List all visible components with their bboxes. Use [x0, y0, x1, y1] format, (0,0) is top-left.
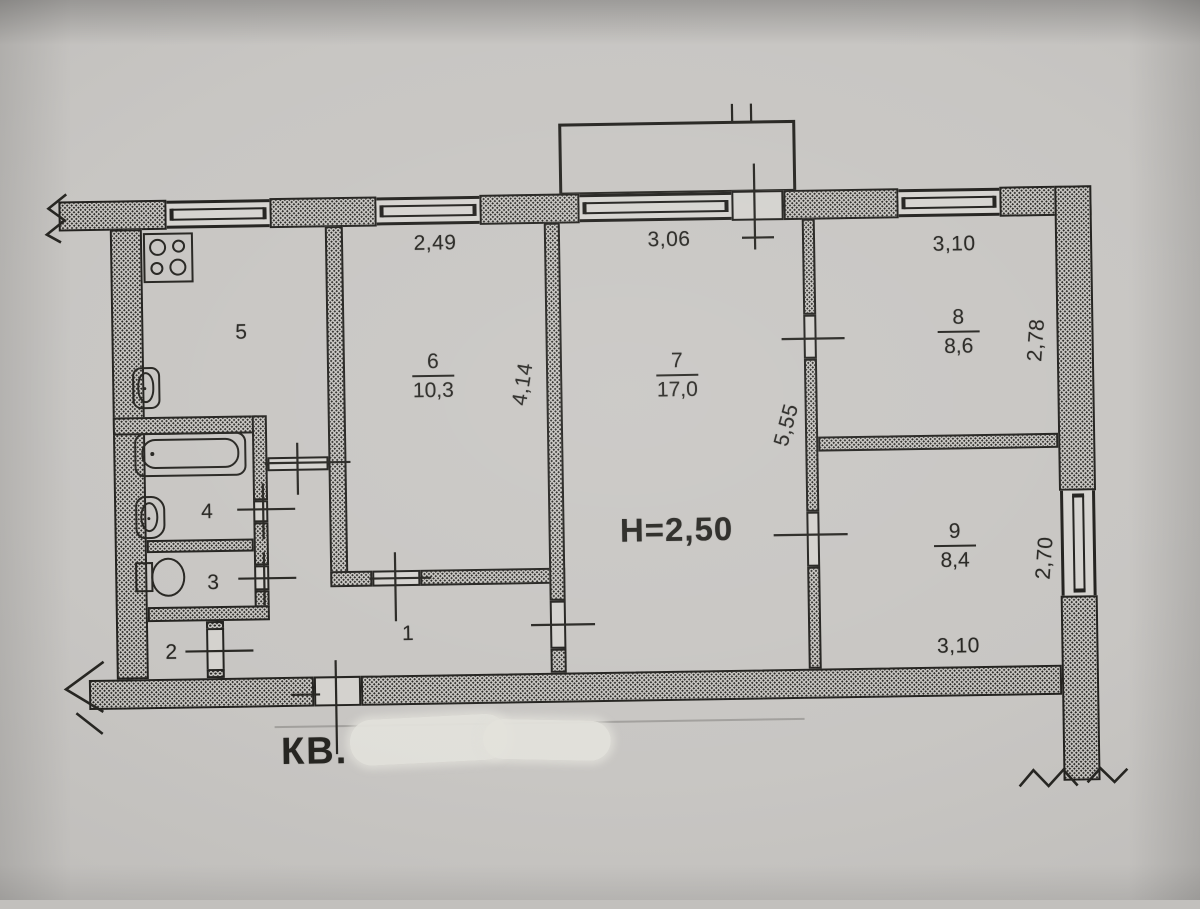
room-9-depth-dimension: 2,70 [1032, 536, 1059, 580]
wall-room8-room9 [818, 433, 1058, 452]
room-9-door [806, 512, 820, 567]
kitchen-door [267, 456, 328, 471]
stove-symbol [143, 232, 194, 283]
wall-bottom-segment [89, 677, 314, 711]
bathroom-door [253, 500, 268, 522]
room-9-window [1060, 490, 1097, 596]
wall-room6-bottom-segment [330, 571, 372, 588]
window-glass [584, 200, 726, 214]
wall-bottom-segment [361, 665, 1062, 706]
room-6-area: 10,3 [413, 377, 454, 404]
wall-room7-room8-segment [802, 219, 817, 315]
room-8-area: 8,6 [944, 333, 974, 360]
room-8-area-fraction: 8 8,6 [937, 305, 980, 359]
wall-hall-room7-segment [550, 649, 566, 673]
room-label-7: 7 [656, 349, 698, 377]
drain-dot [147, 517, 150, 520]
room-6-area-fraction: 6 10,3 [412, 350, 455, 404]
kitchen-window [166, 199, 269, 229]
wall-right-outer-segment [1061, 595, 1101, 781]
window-glass [171, 207, 264, 220]
wall-room7-room8-segment [804, 359, 819, 512]
room-7-window [579, 192, 731, 222]
room-7-area-fraction: 7 17,0 [656, 349, 699, 403]
wall-room7-room9-segment [807, 567, 822, 669]
ceiling-height-label: Н=2,50 [620, 510, 734, 550]
room-6-window [376, 196, 479, 226]
burner-icon [150, 262, 163, 275]
wall-bathroom-right-segment [252, 415, 268, 500]
room-7-width-dimension: 3,06 [647, 228, 690, 253]
room-label-3: 3 [207, 571, 220, 595]
whiteout-blob [482, 719, 611, 761]
wall-top-segment [783, 188, 898, 220]
balcony-door [731, 190, 783, 221]
wall-bathroom-right-segment [253, 522, 269, 565]
room-label-5: 5 [235, 321, 248, 345]
wall-top-segment [58, 200, 166, 232]
closet-door [206, 628, 225, 671]
wall-top-segment [479, 193, 579, 225]
wall-room6-room7 [544, 223, 566, 601]
room-7-door [550, 601, 567, 649]
drain-dot [150, 452, 154, 456]
wall-wc-closet [148, 605, 270, 622]
drain-dot [143, 387, 146, 390]
burner-icon [149, 239, 166, 256]
hallway-depth-dimension: 5,55 [770, 401, 804, 449]
room-8-window [898, 188, 999, 218]
wall-top-segment [269, 196, 376, 228]
wc-door [254, 565, 269, 590]
kitchen-sink-symbol [132, 367, 161, 409]
room-8-width-dimension: 3,10 [933, 232, 976, 257]
room-6-width-dimension: 2,49 [413, 231, 456, 256]
room-8-door [803, 315, 817, 359]
burner-icon [169, 258, 186, 275]
window-glass [1072, 495, 1085, 590]
room-9-width-dimension: 3,10 [937, 634, 980, 659]
room-label-1: 1 [402, 622, 415, 646]
room-6-door [372, 570, 420, 587]
toilet-bowl-symbol [151, 558, 186, 598]
room-7-area: 17,0 [657, 376, 698, 403]
wash-basin-symbol [135, 496, 166, 539]
room-label-2: 2 [165, 641, 178, 665]
room-9-area-fraction: 9 8,4 [934, 519, 977, 573]
room-label-6: 6 [412, 350, 454, 378]
window-glass [381, 204, 474, 217]
room-label-4: 4 [201, 500, 214, 524]
room-8-depth-dimension: 2,78 [1023, 318, 1050, 362]
floor-plan: 2,49 3,06 3,10 4,14 5,55 2,78 2,70 3,10 … [0, 0, 1200, 909]
room-9-area: 8,4 [940, 547, 970, 574]
room-label-8: 8 [937, 305, 979, 333]
bathtub-inner [141, 438, 239, 470]
bathtub-symbol [134, 432, 247, 478]
burner-icon [172, 239, 185, 252]
window-glass [903, 196, 994, 209]
entry-door [314, 676, 361, 707]
room-6-depth-dimension: 4,14 [508, 361, 538, 407]
apartment-number-label: КВ. [281, 730, 349, 774]
wall-right-outer-segment [1054, 185, 1096, 491]
balcony-outline [558, 120, 796, 196]
wall-closet-right-segment [207, 669, 225, 678]
wall-kitchen-room6 [325, 226, 349, 584]
wall-room6-bottom-segment [420, 568, 565, 586]
room-label-9: 9 [934, 519, 976, 547]
scanned-floor-plan-photo: 2,49 3,06 3,10 4,14 5,55 2,78 2,70 3,10 … [0, 0, 1200, 900]
wall-bathroom-wc [147, 538, 254, 553]
